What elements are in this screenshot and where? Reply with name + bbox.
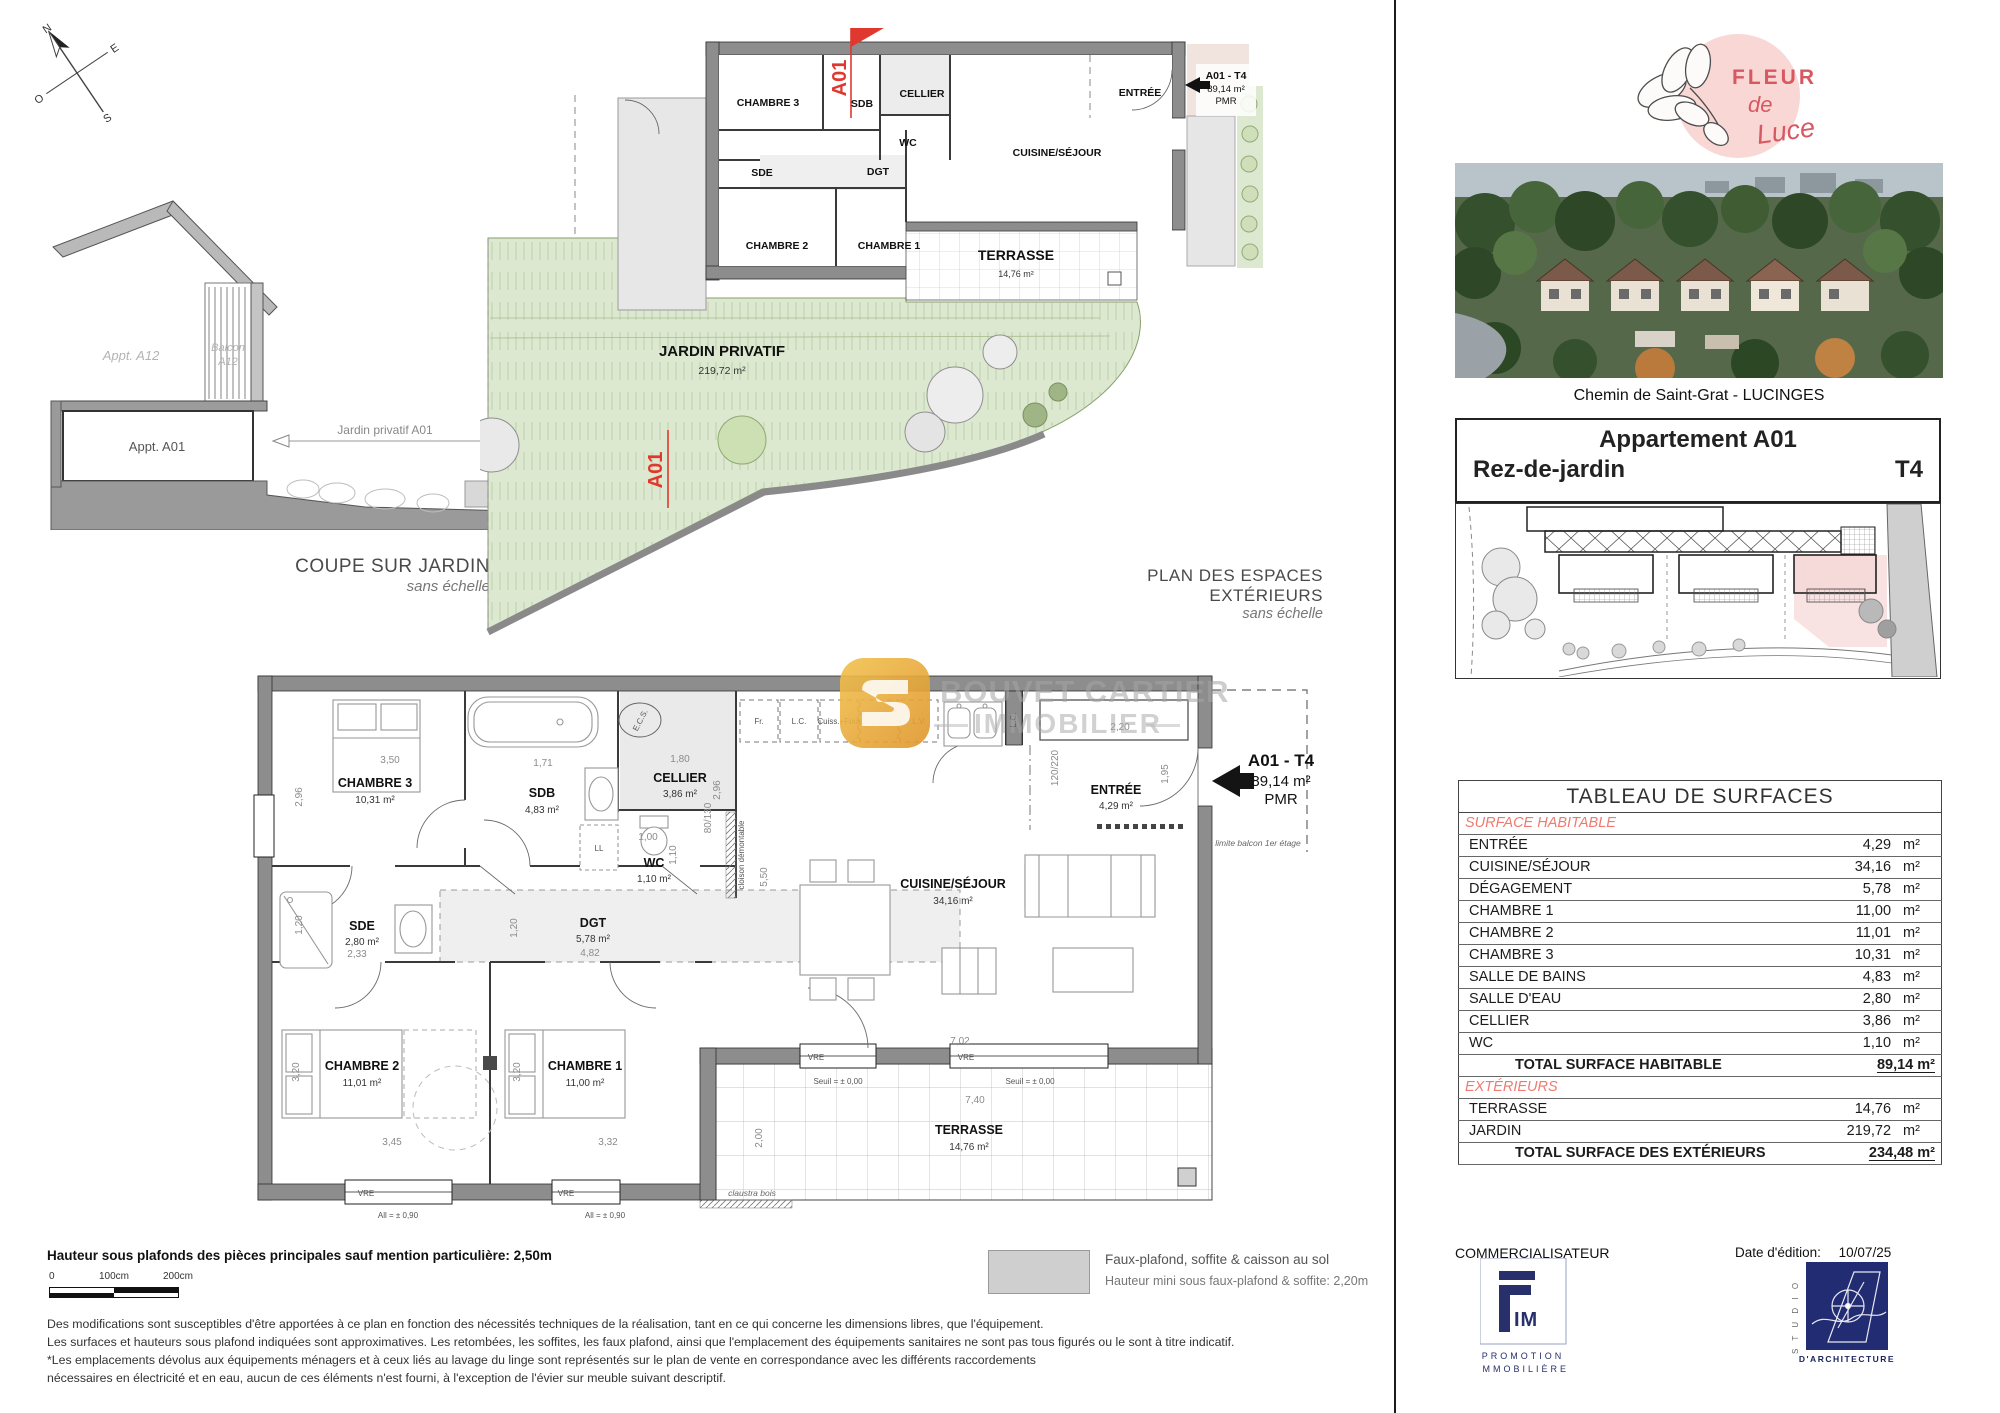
- label-vre: VRE: [358, 1189, 374, 1198]
- fim-box: [1480, 1258, 1566, 1344]
- table-row: CUISINE/SÉJOUR34,16m²: [1459, 857, 1942, 879]
- label-vre: VRE: [958, 1053, 974, 1062]
- table-row: CHAMBRE 111,00m²: [1459, 901, 1942, 923]
- label-sdb-area: 4,83 m²: [525, 805, 560, 816]
- dim-label: 1,80: [670, 754, 690, 765]
- section-exterieurs: EXTÉRIEURS: [1459, 1077, 1942, 1099]
- label-allege: All = ± 0,90: [378, 1211, 419, 1220]
- coupe-caption-sub: sans échelle: [160, 578, 490, 595]
- site-building-deck: [1545, 531, 1841, 552]
- coupe-caption-title: COUPE SUR JARDIN: [160, 556, 490, 578]
- dim-label: 7,02: [950, 1036, 970, 1047]
- edition-date: Date d'édition: 10/07/25: [1735, 1245, 1891, 1260]
- upper-cellier-fill: [880, 55, 950, 115]
- site-photo: [1455, 163, 1943, 378]
- upper-wall-right: [1172, 42, 1185, 118]
- wall-bottom-chambers: [258, 1184, 712, 1200]
- label-allege: All = ± 0,90: [585, 1211, 626, 1220]
- site-building-top: [1527, 507, 1723, 531]
- legend-swatch: [988, 1250, 1090, 1294]
- wall-top: [258, 676, 1212, 691]
- label-sdb: SDB: [529, 786, 555, 800]
- label-sde-area: 2,80 m²: [345, 937, 380, 948]
- label-entree-area: 4,29 m²: [1099, 801, 1134, 812]
- site-annex: [1841, 527, 1875, 554]
- site-road: [1887, 504, 1937, 677]
- fim-immobiliere: IMMOBILIÈRE: [1480, 1364, 1569, 1374]
- table-row: WC1,10m²: [1459, 1033, 1942, 1055]
- studio-sub-text: D'ARCHITECTURE: [1799, 1354, 1895, 1364]
- apartment-level: Rez-de-jardin: [1473, 456, 1625, 484]
- unit-area: 89,14 m²: [1251, 773, 1310, 790]
- scale-100: 100cm: [99, 1271, 129, 1282]
- label-lc-vert: L.C.: [1009, 713, 1018, 728]
- scale-200: 200cm: [163, 1271, 193, 1282]
- upper-wall-bottom: [706, 266, 906, 279]
- compass-e: E: [108, 42, 121, 56]
- wall-right-lower: [1198, 806, 1212, 1064]
- compass-icon: N S E O: [18, 14, 136, 132]
- label-jardin-privatif-dim: Jardin privatif A01: [337, 423, 433, 437]
- label-cuisine-area: 34,16 m²: [933, 896, 973, 907]
- label-appt-a12: Appt. A12: [102, 348, 160, 363]
- studio-vertical-text: S T U D I O: [1791, 1280, 1800, 1354]
- upper-wall-right2: [1172, 150, 1185, 230]
- legend-line2: Hauteur mini sous faux-plafond & soffite…: [1105, 1274, 1368, 1288]
- ground-left: [51, 401, 61, 487]
- site-plan-box: [1455, 503, 1941, 679]
- terrasse-drain: [1178, 1168, 1196, 1186]
- dim-label: 2,96: [294, 787, 305, 807]
- cloison-hatch: [726, 812, 736, 898]
- ext-label-wc: WC: [899, 137, 917, 149]
- unit-tag: A01 - T4 89,14 m² PMR limite balcon 1er …: [1212, 690, 1315, 852]
- table-row: SALLE D'EAU2,80m²: [1459, 989, 1942, 1011]
- table-row: JARDIN219,72m²: [1459, 1121, 1942, 1143]
- scale-bar-graphic: [49, 1287, 179, 1298]
- coffee-table: [1053, 948, 1133, 992]
- entree-closet: [1040, 700, 1188, 740]
- label-seuil: Seuil = ± 0,00: [1005, 1077, 1055, 1086]
- roof-left: [53, 201, 183, 257]
- dim-label: 3,20: [512, 1062, 523, 1082]
- legend-line1: Faux-plafond, soffite & caisson au sol: [1105, 1252, 1329, 1267]
- dim-label: 3,32: [598, 1137, 618, 1148]
- label-cellier: CELLIER: [653, 771, 706, 785]
- ext-label-dgt: DGT: [867, 166, 890, 178]
- wall-right-upper: [1198, 676, 1212, 748]
- total-habitable-row: TOTAL SURFACE HABITABLE89,14 m²: [1459, 1055, 1942, 1077]
- label-cuisine: CUISINE/SÉJOUR: [900, 876, 1006, 891]
- site-boundary: [1469, 507, 1474, 677]
- dim-label: 1,10: [668, 845, 679, 865]
- ext-label-cuisine: CUISINE/SÉJOUR: [1013, 146, 1102, 159]
- ext-label-chambre1: CHAMBRE 1: [858, 240, 921, 252]
- dim-label: 7,40: [965, 1095, 985, 1106]
- label-ll: LL: [595, 844, 604, 853]
- label-dgt: DGT: [580, 916, 607, 930]
- dim-label: 120/220: [1050, 749, 1061, 786]
- surfaces-table: TABLEAU DE SURFACES SURFACE HABITABLE EN…: [1458, 780, 1942, 1165]
- claustra-strip: [700, 1200, 792, 1208]
- dim-label: 1,20: [294, 915, 305, 935]
- fim-promotion: PROMOTION: [1482, 1351, 1565, 1361]
- upper-terrasse: [906, 231, 1137, 300]
- coupe-caption: COUPE SUR JARDIN sans échelle: [160, 556, 490, 595]
- table-row: TERRASSE14,76m²: [1459, 1099, 1942, 1121]
- disclaimer-line: *Les emplacements dévolus aux équipement…: [47, 1353, 1036, 1367]
- ext-unit-pmr: PMR: [1215, 96, 1236, 107]
- label-jardin-privatif: JARDIN PRIVATIF: [659, 343, 785, 360]
- dim-label: 2,00: [754, 1128, 765, 1148]
- table-row: CHAMBRE 310,31m²: [1459, 945, 1942, 967]
- dim-label: 1,71: [533, 758, 553, 769]
- label-terrasse: TERRASSE: [935, 1123, 1003, 1137]
- label-lc2: L.C.: [872, 717, 887, 726]
- disclaimer-line: nécessaires en électricité et en eau, au…: [47, 1371, 726, 1385]
- dim-label: 1,95: [1160, 764, 1171, 784]
- ext-label-cellier: CELLIER: [900, 88, 945, 100]
- pebble-walkway: [618, 98, 706, 310]
- table-row: CHAMBRE 211,01m²: [1459, 923, 1942, 945]
- apartment-type: T4: [1895, 456, 1923, 484]
- ext-label-terrasse-area: 14,76 m²: [998, 269, 1034, 279]
- sde-basin: [395, 905, 432, 953]
- dim-label: 1,00: [638, 832, 658, 843]
- table-row: DÉGAGEMENT5,78m²: [1459, 879, 1942, 901]
- ext-unit-label: A01 - T4: [1206, 70, 1247, 82]
- label-vre: VRE: [808, 1053, 824, 1062]
- address-caption: Chemin de Saint-Grat - LUCINGES: [1455, 387, 1943, 405]
- marker-a01-top: A01: [829, 60, 851, 97]
- label-jardin-area: 219,72 m²: [698, 365, 746, 377]
- upper-wall-top: [706, 42, 1185, 55]
- dim-label: 5,50: [759, 867, 770, 887]
- apartment-title-box: Appartement A01 Rez-de-jardin T4: [1455, 418, 1941, 503]
- ext-label-sdb: SDB: [851, 98, 874, 110]
- ext-label-terrasse: TERRASSE: [978, 247, 1054, 263]
- label-cuiss-four: Cuiss.+Four: [817, 717, 861, 726]
- label-balcon: Balcon: [211, 342, 245, 354]
- label-chambre1-area: 11,00 m²: [566, 1078, 605, 1089]
- scale-0: 0: [49, 1271, 55, 1282]
- dim-label: 80/130: [703, 802, 714, 833]
- label-balcon-a12: A12: [217, 356, 238, 368]
- label-sde: SDE: [349, 919, 375, 933]
- height-note: Hauteur sous plafonds des pièces princip…: [47, 1248, 552, 1263]
- logo-text-de: de: [1748, 92, 1772, 117]
- fim-logo: IM PROMOTION IMMOBILIÈRE: [1480, 1258, 1580, 1383]
- site-road-curve: [1559, 648, 1892, 671]
- unit-pmr: PMR: [1264, 791, 1298, 808]
- site-plan: [1456, 504, 1939, 677]
- plan-sheet: N S E O Appt. A12 Balcon A12 Appt. A01: [0, 0, 2000, 1413]
- wall-terrace-return: [700, 1048, 716, 1200]
- ext-caption: PLAN DES ESPACES EXTÉRIEURS sans échelle: [1040, 566, 1323, 622]
- dim-label: 3,50: [380, 755, 400, 766]
- table-row: ENTRÉE4,29m²: [1459, 835, 1942, 857]
- ext-label-entree: ENTRÉE: [1119, 86, 1162, 99]
- upper-terrasse-drain: [1108, 272, 1121, 285]
- label-wc-area: 1,10 m²: [637, 874, 672, 885]
- ext-caption-sub: sans échelle: [1040, 606, 1323, 622]
- label-chambre3: CHAMBRE 3: [338, 776, 412, 790]
- section-surface-habitable: SURFACE HABITABLE: [1459, 813, 1942, 835]
- column-divider: [1394, 0, 1396, 1413]
- label-chambre2-area: 11,01 m²: [343, 1078, 382, 1089]
- marker-a01-bottom: A01: [645, 452, 667, 489]
- dim-label: 3,45: [382, 1137, 402, 1148]
- site-terraces: [1574, 589, 1865, 602]
- dim-label: 3,20: [291, 1062, 302, 1082]
- balcony-wall: [251, 283, 263, 407]
- bed-chambre1: [505, 1030, 625, 1118]
- label-entree: ENTRÉE: [1091, 782, 1142, 797]
- label-chambre3-area: 10,31 m²: [355, 795, 395, 806]
- label-chambre1: CHAMBRE 1: [548, 1059, 622, 1073]
- fim-im-text: IM: [1514, 1309, 1538, 1331]
- table-row: SALLE DE BAINS4,83m²: [1459, 967, 1942, 989]
- unit-label: A01 - T4: [1248, 751, 1315, 770]
- label-terrasse-area: 14,76 m²: [949, 1142, 989, 1153]
- ext-unit-area: 89,14 m²: [1207, 84, 1245, 95]
- surfaces-title: TABLEAU DE SURFACES: [1459, 781, 1942, 813]
- bathtub: [468, 697, 598, 747]
- apartment-title: Appartement A01: [1457, 420, 1939, 454]
- wall-left: [258, 676, 272, 1200]
- site-road-curve2: [1559, 656, 1892, 677]
- section-drawing: Appt. A12 Balcon A12 Appt. A01 Jardin pr…: [45, 185, 515, 530]
- label-claustra: claustra bois: [728, 1188, 776, 1198]
- fleur-de-luce-logo: FLEUR de Luce: [1620, 18, 1840, 168]
- ground: [51, 481, 515, 530]
- ext-caption-title: PLAN DES ESPACES EXTÉRIEURS: [1040, 566, 1323, 606]
- sofa: [1025, 855, 1155, 917]
- label-fr: Fr.: [754, 717, 763, 726]
- studio-architecture-logo: S T U D I O D'ARCHITECTURE: [1788, 1262, 1898, 1374]
- upper-sejour-bottom-wall: [906, 222, 1137, 231]
- label-lc1: L.C.: [792, 717, 807, 726]
- sdb-basin: [585, 768, 618, 820]
- entrance-path: [1187, 116, 1235, 266]
- label-cellier-area: 3,86 m²: [663, 789, 698, 800]
- disclaimer-line: Des modifications sont susceptibles d'êt…: [47, 1317, 1044, 1331]
- sde-shower: [280, 892, 332, 968]
- label-lv: L.V.: [912, 717, 926, 726]
- ext-label-sde: SDE: [751, 167, 773, 179]
- label-wc: WC: [644, 856, 665, 870]
- dim-arrow-left: [273, 435, 289, 447]
- site-units: [1559, 555, 1876, 593]
- label-appt-a01: Appt. A01: [129, 439, 185, 454]
- kitchen-sink: [944, 702, 1002, 746]
- date-value: 10/07/25: [1839, 1245, 1892, 1260]
- label-limite-balcon: limite balcon 1er étage: [1215, 838, 1301, 848]
- logo-text-fleur: FLEUR: [1732, 66, 1817, 89]
- total-exterieurs-row: TOTAL SURFACE DES EXTÉRIEURS234,48 m²: [1459, 1143, 1942, 1165]
- upper-wall-left: [706, 42, 719, 280]
- tv-bench: [942, 948, 996, 994]
- fleur-logo-icon: FLEUR de Luce: [1620, 18, 1840, 168]
- compass-s: S: [101, 112, 114, 126]
- dim-label: 2,20: [1110, 722, 1130, 733]
- date-label: Date d'édition:: [1735, 1245, 1821, 1260]
- label-vre: VRE: [558, 1189, 574, 1198]
- dim-label: 4,82: [580, 948, 600, 959]
- dim-label: 2,33: [347, 949, 367, 960]
- label-cloison: cloison démontable: [737, 820, 746, 889]
- label-dgt-area: 5,78 m²: [576, 934, 611, 945]
- dim-label: 1,20: [509, 918, 520, 938]
- main-floor-plan: LL E.C.S.: [150, 660, 1350, 1260]
- label-seuil: Seuil = ± 0,00: [813, 1077, 863, 1086]
- disclaimer-line: Les surfaces et hauteurs sous plafond in…: [47, 1335, 1234, 1349]
- table-row: CELLIER3,86m²: [1459, 1011, 1942, 1033]
- compass-o: O: [33, 92, 47, 107]
- floor-slab: [55, 401, 267, 411]
- label-chambre2: CHAMBRE 2: [325, 1059, 399, 1073]
- scale-bar: 0 100cm 200cm: [47, 1271, 267, 1307]
- dim-label: 2,96: [712, 780, 723, 800]
- ext-label-chambre3: CHAMBRE 3: [737, 97, 800, 109]
- column: [483, 1056, 497, 1070]
- ext-label-chambre2: CHAMBRE 2: [746, 240, 809, 252]
